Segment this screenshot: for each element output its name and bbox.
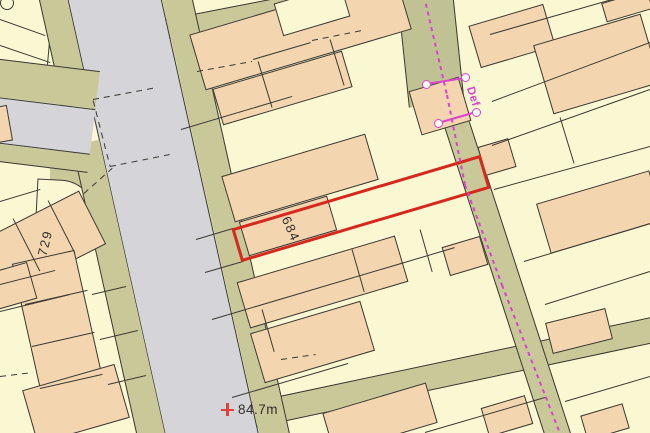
building <box>442 236 489 276</box>
spot-height: 84.7m <box>221 402 291 418</box>
dashed-boundary-line <box>0 372 33 377</box>
boundary-line <box>545 271 650 305</box>
circular-feature-icon <box>0 0 14 10</box>
spot-height-label: 84.7m <box>238 403 278 417</box>
building <box>580 403 630 433</box>
boundary-node-icon <box>472 108 481 117</box>
map-canvas[interactable]: 84.7m 684 729 Def <box>0 0 650 433</box>
boundary-node-icon <box>422 80 431 89</box>
boundary-line <box>0 19 45 36</box>
boundary-line <box>419 230 432 272</box>
boundary-line <box>559 118 574 164</box>
spot-height-cross-icon <box>221 403 234 416</box>
boundary-line <box>0 189 40 202</box>
boundary-node-icon <box>461 73 470 82</box>
boundary-line <box>565 376 650 402</box>
boundary-node-icon <box>434 119 443 128</box>
